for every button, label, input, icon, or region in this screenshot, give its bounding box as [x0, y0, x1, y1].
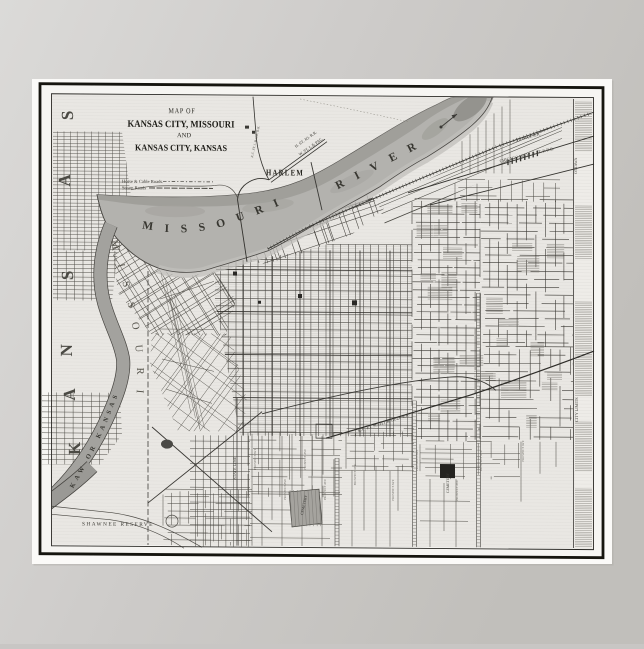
svg-text:PROSPECT AVE: PROSPECT AVE	[455, 480, 459, 501]
svg-text:MAP OF: MAP OF	[169, 106, 196, 115]
svg-text:SHAWNEE RESERVE: SHAWNEE RESERVE	[82, 521, 154, 528]
svg-text:PROSPECT AVE: PROSPECT AVE	[391, 479, 395, 500]
svg-text:KANSAS CITY, MISSOURI: KANSAS CITY, MISSOURI	[128, 119, 235, 131]
svg-text:HARLEM: HARLEM	[266, 167, 304, 177]
svg-text:S: S	[58, 271, 77, 281]
svg-text:K: K	[65, 441, 84, 455]
svg-text:N: N	[57, 343, 76, 356]
svg-text:PROSPECT AVE: PROSPECT AVE	[479, 450, 483, 471]
svg-text:OTTAWA: OTTAWA	[573, 158, 578, 174]
svg-text:PROSPECT AVE: PROSPECT AVE	[253, 448, 257, 469]
svg-text:A: A	[55, 173, 74, 186]
svg-text:PROSPECT AVE: PROSPECT AVE	[353, 464, 357, 485]
svg-text:PROSPECT AVE: PROSPECT AVE	[521, 440, 525, 461]
svg-text:PROSPECT AVE: PROSPECT AVE	[283, 479, 287, 500]
svg-text:CEMETERY: CEMETERY	[446, 473, 450, 494]
svg-text:PROSPECT AVE: PROSPECT AVE	[415, 450, 419, 471]
svg-text:KANSAS CITY, KANSAS: KANSAS CITY, KANSAS	[135, 142, 227, 153]
svg-text:PROSPECT AVE: PROSPECT AVE	[303, 449, 307, 470]
svg-text:Steam Roads: Steam Roads	[122, 185, 146, 190]
svg-text:CITY LIMITS: CITY LIMITS	[574, 397, 579, 422]
svg-text:Horse & Cable Roads.: Horse & Cable Roads.	[122, 179, 163, 184]
svg-text:S: S	[58, 111, 77, 121]
svg-text:STATE LINE: STATE LINE	[232, 456, 237, 479]
svg-text:PROSPECT AVE: PROSPECT AVE	[323, 479, 327, 500]
svg-text:AND: AND	[177, 132, 191, 139]
svg-text:A: A	[60, 387, 79, 400]
